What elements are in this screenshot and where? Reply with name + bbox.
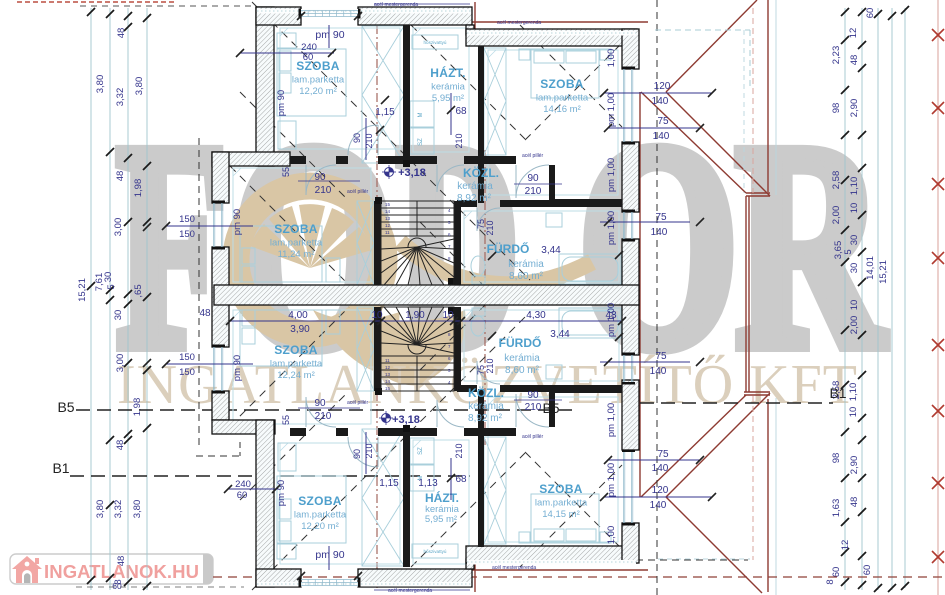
svg-text:3,80: 3,80 xyxy=(95,500,106,519)
svg-text:3,80: 3,80 xyxy=(132,500,143,519)
svg-text:210: 210 xyxy=(525,402,542,413)
svg-text:120: 120 xyxy=(652,485,669,496)
svg-text:120: 120 xyxy=(654,81,671,92)
svg-text:48: 48 xyxy=(849,497,860,508)
svg-text:210: 210 xyxy=(485,358,495,373)
svg-text:2,00: 2,00 xyxy=(831,206,842,225)
svg-text:11: 11 xyxy=(385,230,390,235)
svg-text:5,95 m²: 5,95 m² xyxy=(425,514,457,525)
svg-text:1,00: 1,00 xyxy=(606,526,617,545)
svg-text:SZ: SZ xyxy=(418,138,424,146)
svg-text:kerámia: kerámia xyxy=(504,353,540,364)
svg-text:8,92 m²: 8,92 m² xyxy=(457,193,492,204)
svg-text:75: 75 xyxy=(655,351,667,362)
svg-text:2,58: 2,58 xyxy=(831,171,842,190)
svg-text:60: 60 xyxy=(862,565,873,576)
svg-text:15,21: 15,21 xyxy=(77,278,88,302)
svg-text:pm 90: pm 90 xyxy=(315,29,344,41)
svg-text:1,90: 1,90 xyxy=(405,310,425,321)
svg-text:14,16 m²: 14,16 m² xyxy=(543,104,581,115)
svg-text:150: 150 xyxy=(179,367,195,378)
svg-text:2,00: 2,00 xyxy=(849,316,860,335)
svg-text:10: 10 xyxy=(849,300,860,311)
svg-text:210: 210 xyxy=(485,220,495,235)
svg-text:60: 60 xyxy=(112,581,122,591)
svg-text:140: 140 xyxy=(650,366,667,377)
svg-text:75: 75 xyxy=(655,212,667,223)
svg-text:68: 68 xyxy=(455,474,467,485)
svg-text:5,95 m²: 5,95 m² xyxy=(432,93,464,104)
svg-text:lam.parketta: lam.parketta xyxy=(270,359,323,370)
svg-text:2,90: 2,90 xyxy=(849,99,860,118)
svg-text:pm 1,00: pm 1,00 xyxy=(606,93,617,127)
svg-text:HÁZT.: HÁZT. xyxy=(430,65,466,80)
svg-text:8,92 m²: 8,92 m² xyxy=(468,413,503,424)
svg-text:1,15: 1,15 xyxy=(379,478,399,489)
svg-text:210: 210 xyxy=(315,411,332,422)
svg-text:10: 10 xyxy=(442,310,454,321)
svg-text:14,15 m²: 14,15 m² xyxy=(542,509,580,520)
svg-text:30: 30 xyxy=(849,263,860,274)
svg-text:1,15: 1,15 xyxy=(375,107,395,118)
svg-text:1,63: 1,63 xyxy=(831,499,842,518)
svg-text:+3,18: +3,18 xyxy=(392,414,420,426)
svg-text:hőszivattyú: hőszivattyú xyxy=(424,549,447,554)
svg-text:15: 15 xyxy=(385,202,391,207)
svg-text:98: 98 xyxy=(831,453,842,464)
svg-text:pm 1,00: pm 1,00 xyxy=(606,211,617,245)
svg-text:210: 210 xyxy=(454,443,464,458)
svg-text:210: 210 xyxy=(525,186,542,197)
svg-text:3,32: 3,32 xyxy=(113,500,124,519)
svg-text:90: 90 xyxy=(527,390,539,401)
svg-text:48: 48 xyxy=(116,28,127,39)
svg-text:68: 68 xyxy=(455,106,467,117)
svg-text:4,00: 4,00 xyxy=(288,310,308,321)
svg-text:1,13: 1,13 xyxy=(418,478,438,489)
svg-text:5: 5 xyxy=(106,284,117,289)
svg-text:pm 1,00: pm 1,00 xyxy=(606,403,617,437)
svg-text:14,01: 14,01 xyxy=(865,256,876,280)
svg-text:kerámia: kerámia xyxy=(457,181,493,192)
svg-text:90: 90 xyxy=(314,398,326,409)
svg-text:150: 150 xyxy=(179,214,195,225)
svg-text:140: 140 xyxy=(652,463,669,474)
svg-text:B1: B1 xyxy=(52,460,69,476)
svg-text:12,20 m²: 12,20 m² xyxy=(301,521,339,532)
svg-text:pm 90: pm 90 xyxy=(232,355,243,381)
svg-text:3,65: 3,65 xyxy=(833,241,844,260)
svg-text:2,90: 2,90 xyxy=(849,456,860,475)
svg-text:8,60 m²: 8,60 m² xyxy=(509,271,544,282)
svg-text:12,20 m²: 12,20 m² xyxy=(299,86,337,97)
svg-text:kerámia: kerámia xyxy=(431,82,466,93)
svg-text:SZOBA: SZOBA xyxy=(274,222,318,236)
svg-text:pm 90: pm 90 xyxy=(315,549,344,561)
svg-text:3,44: 3,44 xyxy=(541,245,561,256)
svg-text:SZ: SZ xyxy=(418,447,424,455)
svg-text:60: 60 xyxy=(865,8,876,19)
svg-text:HÁZT.: HÁZT. xyxy=(425,490,459,505)
svg-text:lam.parketta: lam.parketta xyxy=(294,510,347,521)
svg-text:,65: ,65 xyxy=(133,284,144,297)
svg-text:90: 90 xyxy=(527,173,539,184)
svg-text:10: 10 xyxy=(371,310,383,321)
svg-text:12: 12 xyxy=(385,223,391,228)
svg-text:140: 140 xyxy=(650,500,667,511)
svg-text:M: M xyxy=(418,113,424,118)
svg-text:KÖZL.: KÖZL. xyxy=(468,385,504,400)
svg-text:acél pillér: acél pillér xyxy=(347,189,368,195)
svg-text:12,24 m²: 12,24 m² xyxy=(277,370,315,381)
svg-text:13: 13 xyxy=(385,216,391,221)
svg-text:lam.parketta: lam.parketta xyxy=(292,75,345,86)
svg-text:75: 75 xyxy=(657,449,669,460)
svg-text:4,30: 4,30 xyxy=(526,310,546,321)
svg-text:140: 140 xyxy=(652,96,669,107)
svg-text:kerámia: kerámia xyxy=(468,401,504,412)
svg-text:1,98: 1,98 xyxy=(132,398,143,417)
svg-text:B5: B5 xyxy=(57,399,74,415)
svg-text:SZOBA: SZOBA xyxy=(298,494,342,508)
svg-text:30: 30 xyxy=(113,310,124,321)
svg-text:8: 8 xyxy=(825,579,836,584)
svg-text:60: 60 xyxy=(303,52,314,63)
svg-text:90: 90 xyxy=(352,449,362,459)
svg-text:1,10: 1,10 xyxy=(848,383,859,402)
svg-text:15,21: 15,21 xyxy=(878,260,889,284)
svg-text:3,44: 3,44 xyxy=(550,329,570,340)
svg-text:12: 12 xyxy=(848,28,859,39)
svg-text:acél mestergerenda: acél mestergerenda xyxy=(388,588,432,594)
svg-text:55: 55 xyxy=(281,167,291,177)
svg-text:B1: B1 xyxy=(829,385,846,401)
svg-text:FÜRDŐ: FÜRDŐ xyxy=(487,241,530,256)
svg-text:lam.parketta: lam.parketta xyxy=(535,498,588,509)
svg-text:12: 12 xyxy=(840,540,851,551)
svg-text:75: 75 xyxy=(657,116,669,127)
svg-text:SZOBA: SZOBA xyxy=(539,482,583,496)
svg-text:150: 150 xyxy=(179,352,195,363)
svg-text:pm 1,00: pm 1,00 xyxy=(606,303,617,337)
svg-text:240: 240 xyxy=(235,479,251,490)
svg-text:3,80: 3,80 xyxy=(134,77,145,96)
svg-text:SZOBA: SZOBA xyxy=(540,77,584,91)
svg-text:3,80: 3,80 xyxy=(95,75,106,94)
svg-text:48: 48 xyxy=(199,308,211,319)
svg-text:acél pillér: acél pillér xyxy=(522,153,543,159)
svg-text:60: 60 xyxy=(831,567,842,578)
svg-text:pm 90: pm 90 xyxy=(276,480,287,506)
svg-text:pm 1,00: pm 1,00 xyxy=(606,463,617,497)
svg-text:98: 98 xyxy=(831,103,842,114)
svg-text:5: 5 xyxy=(843,249,854,254)
svg-text:150: 150 xyxy=(179,229,195,240)
svg-text:7,61: 7,61 xyxy=(94,273,105,292)
svg-text:11: 11 xyxy=(385,358,390,363)
svg-text:140: 140 xyxy=(653,131,670,142)
svg-text:3,00: 3,00 xyxy=(113,218,124,237)
svg-text:1,98: 1,98 xyxy=(133,179,144,198)
svg-text:+3,18: +3,18 xyxy=(398,167,426,179)
svg-text:55: 55 xyxy=(281,415,291,425)
svg-text:48: 48 xyxy=(115,171,126,182)
svg-text:210: 210 xyxy=(454,133,464,148)
svg-text:140: 140 xyxy=(651,227,668,238)
svg-text:60: 60 xyxy=(237,490,248,501)
svg-text:pm 1,00: pm 1,00 xyxy=(606,158,617,192)
svg-text:13: 13 xyxy=(385,372,391,377)
svg-text:48: 48 xyxy=(116,556,127,567)
svg-text:acél pillér: acél pillér xyxy=(347,400,368,406)
svg-text:acél pillér: acél pillér xyxy=(522,434,543,440)
svg-text:11,24 m²: 11,24 m² xyxy=(278,249,315,260)
svg-text:kerámia: kerámia xyxy=(508,259,544,270)
svg-text:90: 90 xyxy=(352,133,362,143)
svg-text:210: 210 xyxy=(315,185,332,196)
svg-text:15: 15 xyxy=(385,386,391,391)
svg-text:3,32: 3,32 xyxy=(115,88,126,107)
svg-text:10: 10 xyxy=(849,203,860,214)
svg-text:48: 48 xyxy=(849,55,860,66)
svg-text:lam.parketta: lam.parketta xyxy=(270,238,323,249)
svg-text:acél mestergerenda: acél mestergerenda xyxy=(374,2,418,8)
svg-text:30: 30 xyxy=(849,235,860,246)
svg-text:FÜRDŐ: FÜRDŐ xyxy=(499,335,542,350)
svg-text:hőszivattyú: hőszivattyú xyxy=(424,40,447,45)
svg-text:14: 14 xyxy=(385,379,391,384)
svg-text:8,60 m²: 8,60 m² xyxy=(505,365,540,376)
svg-text:acél mestergerenda: acél mestergerenda xyxy=(497,20,541,26)
svg-text:10: 10 xyxy=(848,407,859,418)
svg-text:lam.parketta: lam.parketta xyxy=(536,93,589,104)
svg-text:1,00: 1,00 xyxy=(606,49,617,68)
svg-text:acél mestergerenda: acél mestergerenda xyxy=(492,565,536,571)
svg-text:KÖZL.: KÖZL. xyxy=(463,165,499,180)
svg-text:90: 90 xyxy=(314,172,326,183)
svg-text:pm 90: pm 90 xyxy=(232,209,243,235)
svg-text:SZOBA: SZOBA xyxy=(274,343,318,357)
svg-text:3,00: 3,00 xyxy=(115,354,126,373)
svg-text:14: 14 xyxy=(385,209,391,214)
svg-text:pm 90: pm 90 xyxy=(276,90,287,116)
svg-text:2,23: 2,23 xyxy=(831,46,842,65)
svg-text:48: 48 xyxy=(115,440,126,451)
svg-text:3,90: 3,90 xyxy=(290,324,310,335)
svg-text:12: 12 xyxy=(385,365,391,370)
svg-text:1,10: 1,10 xyxy=(849,177,860,196)
